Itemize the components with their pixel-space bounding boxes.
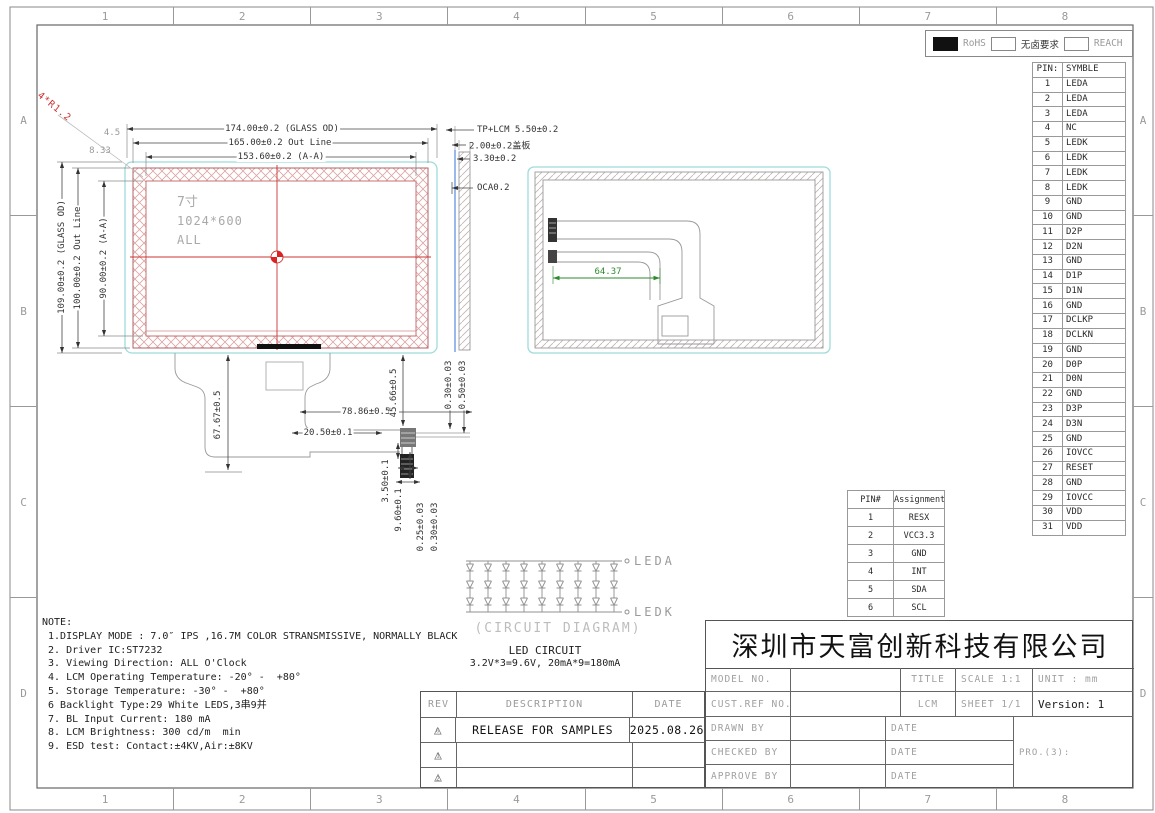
pin-symbol: GND (1063, 195, 1126, 210)
pin-number: 26 (1033, 446, 1063, 461)
zone-row-label: B (10, 216, 37, 407)
pin-number: 27 (1033, 461, 1063, 476)
pin-symbol: VDD (1063, 520, 1126, 535)
dim-thickness-1: 0.30±0.03 (444, 360, 454, 411)
pin-table-row: 2 LEDA (1033, 92, 1126, 107)
tp-pin-assignment: RESX (894, 509, 945, 527)
zone-col-label: 1 (37, 788, 174, 810)
zone-band-bottom: 12345678 (37, 788, 1133, 810)
model-no-value (791, 668, 901, 692)
pin-table-row: 26 IOVCC (1033, 446, 1126, 461)
note-line: 7. BL Input Current: 180 mA (42, 713, 457, 727)
dim-cable-length: 45.66±0.5 (389, 368, 399, 419)
pin-table-row: 8 LEDK (1033, 181, 1126, 196)
tp-pin-number: 5 (848, 581, 894, 599)
checked-by-value (791, 741, 886, 765)
dim-outline-height: 100.00±0.2 Out Line (73, 206, 83, 311)
pin-symbol: D3N (1063, 417, 1126, 432)
pin-table-row: 24 D3N (1033, 417, 1126, 432)
approve-date-label: DATE (886, 765, 1014, 788)
pin-symbol: GND (1063, 432, 1126, 447)
pin-table-row: 28 GND (1033, 476, 1126, 491)
zone-band-top: 12345678 (37, 7, 1133, 25)
pin-number: 14 (1033, 269, 1063, 284)
pin-number: 8 (1033, 181, 1063, 196)
side-view (446, 126, 474, 352)
dim-thickness-4: 0.30±0.03 (430, 502, 440, 553)
zone-row-label: D (1133, 598, 1153, 788)
note-line: 6 Backlight Type:29 White LEDS,3串9并 (42, 699, 457, 713)
date-col-header: DATE (633, 692, 704, 717)
zone-row-label: D (10, 598, 37, 788)
pin-number: 13 (1033, 254, 1063, 269)
zone-col-label: 8 (997, 7, 1133, 25)
front-view (125, 162, 437, 353)
pin-number: 19 (1033, 343, 1063, 358)
scale-label: SCALE 1:1 (956, 668, 1033, 692)
dim-cover-glass: 2.00±0.2盖板 (469, 139, 530, 152)
model-no-label: MODEL NO. (706, 668, 791, 692)
tp-pin-number: 6 (848, 599, 894, 617)
note-line: 9. ESD test: Contact:±4KV,Air:±8KV (42, 740, 457, 754)
pin-number: 9 (1033, 195, 1063, 210)
halogen-free-label: 无卤要求 (1021, 37, 1059, 51)
pin-symbol: NC (1063, 122, 1126, 137)
pin-number: 11 (1033, 225, 1063, 240)
zone-col-label: 2 (174, 7, 311, 25)
tp-pin-col-header: PIN# (848, 491, 894, 509)
approve-by-value (791, 765, 886, 788)
pin-table-row: 15 D1N (1033, 284, 1126, 299)
rohs-checkbox (933, 37, 958, 51)
lcm-label: LCM (901, 692, 956, 717)
pin-table-row: 6 LEDK (1033, 151, 1126, 166)
pin-symbol-table: PIN: SYMBLE 1 LEDA 2 LEDA 3 LEDA 4 NC 5 … (1032, 62, 1126, 536)
pin-number: 29 (1033, 491, 1063, 506)
pin-number: 21 (1033, 373, 1063, 388)
approve-by-label: APPROVE BY (706, 765, 791, 788)
reach-checkbox (1064, 37, 1089, 51)
tp-pin-assignment: GND (894, 545, 945, 563)
dim-lines-bottom (205, 355, 472, 482)
dim-thickness-3: 0.25±0.03 (416, 502, 426, 553)
zone-col-label: 3 (311, 788, 448, 810)
title-label: TITLE (901, 668, 956, 692)
revision-marker: △0 (421, 718, 456, 742)
pin-table-row: 17 DCLKP (1033, 314, 1126, 329)
pin-symbol: DCLKP (1063, 314, 1126, 329)
projection-label: PRO.(3): (1019, 748, 1070, 758)
pin-table-row: 25 GND (1033, 432, 1126, 447)
pin-symbol: VDD (1063, 505, 1126, 520)
dim-glass-width: 174.00±0.2 (GLASS OD) (224, 124, 340, 134)
pin-number: 5 (1033, 136, 1063, 151)
tp-table-header: PIN# Assignment (848, 491, 945, 509)
tp-pin-assignment: SCL (894, 599, 945, 617)
pin-number: 20 (1033, 358, 1063, 373)
pin-number: 18 (1033, 328, 1063, 343)
zone-col-label: 6 (723, 7, 860, 25)
zone-col-label: 7 (860, 7, 997, 25)
dim-tp-lcm: TP+LCM 5.50±0.2 (477, 125, 558, 135)
version-label: Version: 1 (1033, 692, 1133, 717)
halogen-free-checkbox (991, 37, 1016, 51)
dim-fpc-offset: 20.50±0.1 (303, 428, 354, 438)
tp-table-row: 6 SCL (848, 599, 945, 617)
pin-table-row: 20 D0P (1033, 358, 1126, 373)
pin-number: 3 (1033, 107, 1063, 122)
pin-symbol: GND (1063, 476, 1126, 491)
zone-row-label: A (10, 25, 37, 216)
tp-table-row: 3 GND (848, 545, 945, 563)
pin-symbol: LEDK (1063, 166, 1126, 181)
dim-oca: OCA0.2 (477, 183, 510, 193)
pin-number: 1 (1033, 77, 1063, 92)
pin-table-row: 12 D2N (1033, 240, 1126, 255)
zone-row-label: C (10, 407, 37, 598)
dim-aa-height: 90.00±0.2 (A-A) (99, 216, 109, 299)
pin-table-row: 27 RESET (1033, 461, 1126, 476)
pin-number: 6 (1033, 151, 1063, 166)
dim-outline-width: 165.00±0.2 Out Line (228, 138, 333, 148)
tp-table-row: 4 INT (848, 563, 945, 581)
pin-number: 10 (1033, 210, 1063, 225)
revision-description (457, 768, 633, 787)
pin-number: 23 (1033, 402, 1063, 417)
pin-table-row: 30 VDD (1033, 505, 1126, 520)
sheet-label: SHEET 1/1 (956, 692, 1033, 717)
zone-col-label: 4 (448, 788, 585, 810)
zone-row-label: C (1133, 407, 1153, 598)
led-circuit (466, 559, 629, 614)
checked-by-label: CHECKED BY (706, 741, 791, 765)
pin-number: 31 (1033, 520, 1063, 535)
reach-label: REACH (1094, 38, 1123, 49)
drawing-sheet: 12345678 12345678 ABCD ABCD RoHS 无卤要求 RE… (0, 0, 1155, 813)
tp-pin-number: 1 (848, 509, 894, 527)
revision-description (457, 743, 633, 767)
zone-col-label: 4 (448, 7, 585, 25)
zone-row-label: B (1133, 216, 1153, 407)
pin-table-row: 14 D1P (1033, 269, 1126, 284)
pin-symbol: D1N (1063, 284, 1126, 299)
pin-number: 24 (1033, 417, 1063, 432)
tp-table-row: 1 RESX (848, 509, 945, 527)
tp-table-row: 5 SDA (848, 581, 945, 599)
pin-symbol: RESET (1063, 461, 1126, 476)
pin-number: 4 (1033, 122, 1063, 137)
revision-date (633, 768, 704, 787)
revision-date: 2025.08.26 (630, 718, 704, 742)
pin-symbol: LEDA (1063, 107, 1126, 122)
note-line: 3. Viewing Direction: ALL O'Clock (42, 657, 457, 671)
pin-number: 12 (1033, 240, 1063, 255)
drawn-date-label: DATE (886, 717, 1014, 741)
zone-col-label: 6 (723, 788, 860, 810)
dim-corner-b: 8.33 (88, 146, 112, 156)
title-block: 深圳市天富创新科技有限公司 MODEL NO. TITLE SCALE 1:1 … (705, 620, 1133, 788)
pin-table-row: 31 VDD (1033, 520, 1126, 535)
pin-table-row: 1 LEDA (1033, 77, 1126, 92)
notes-title: NOTE: (42, 616, 457, 630)
rev-col-header: REV (421, 692, 457, 717)
pin-table-header: PIN: SYMBLE (1033, 63, 1126, 78)
zone-col-label: 8 (997, 788, 1133, 810)
revision-header: REV DESCRIPTION DATE (421, 692, 704, 718)
note-line: 4. LCM Operating Temperature: -20° - +80… (42, 671, 457, 685)
drawn-by-value (791, 717, 886, 741)
dim-lcm-thickness: 3.30±0.2 (473, 154, 516, 164)
led-circuit-spec: 3.2V*3=9.6V, 20mA*9=180mA (470, 658, 621, 669)
pin-symbol: LEDK (1063, 136, 1126, 151)
pin-table-row: 4 NC (1033, 122, 1126, 137)
zone-col-label: 3 (311, 7, 448, 25)
cust-ref-label: CUST.REF NO. (706, 692, 791, 717)
note-line: 1.DISPLAY MODE : 7.0″ IPS ,16.7M COLOR S… (42, 630, 457, 644)
note-line: 8. LCM Brightness: 300 cd/m min (42, 726, 457, 740)
zone-col-label: 5 (586, 788, 723, 810)
unit-label: UNIT : mm (1033, 668, 1133, 692)
tp-pin-table: PIN# Assignment 1 RESX 2 VCC3.3 3 GND 4 … (847, 490, 945, 617)
zone-band-left: ABCD (10, 25, 37, 788)
pin-table-row: 5 LEDK (1033, 136, 1126, 151)
pin-number: 28 (1033, 476, 1063, 491)
pin-table-row: 22 GND (1033, 387, 1126, 402)
tp-pin-assignment: INT (894, 563, 945, 581)
note-line: 5. Storage Temperature: -30° - +80° (42, 685, 457, 699)
pin-symbol: GND (1063, 299, 1126, 314)
pin-symbol: D0P (1063, 358, 1126, 373)
dim-glass-height: 109.00±0.2 (GLASS OD) (57, 199, 67, 315)
zone-col-label: 1 (37, 7, 174, 25)
pin-symbol: LEDA (1063, 77, 1126, 92)
note-line: 2. Driver IC:ST7232 (42, 644, 457, 658)
revision-triangle-icon: △2 (434, 771, 443, 784)
description-col-header: DESCRIPTION (457, 692, 633, 717)
dim-corner-a: 4.5 (103, 128, 121, 138)
dim-fpc-width: 78.86±0.5 (341, 407, 392, 417)
dim-gap: 3.50±0.1 (381, 458, 391, 503)
zone-col-label: 5 (586, 7, 723, 25)
pin-symbol: LEDK (1063, 151, 1126, 166)
dim-back-cable: 64.37 (593, 267, 622, 277)
pin-symbol: GND (1063, 254, 1126, 269)
pin-symbol: D2N (1063, 240, 1126, 255)
revision-row: △1 (421, 743, 704, 768)
panel-size: 7寸 (177, 193, 243, 212)
pin-number: 16 (1033, 299, 1063, 314)
pin-number: 7 (1033, 166, 1063, 181)
pin-symbol: GND (1063, 343, 1126, 358)
compliance-box: RoHS 无卤要求 REACH (925, 30, 1133, 57)
pin-symbol: LEDA (1063, 92, 1126, 107)
leda-label: LEDA (634, 554, 675, 568)
revision-table: REV DESCRIPTION DATE △0 RELEASE FOR SAMP… (420, 691, 705, 788)
pin-number: 30 (1033, 505, 1063, 520)
revision-marker: △1 (421, 743, 457, 767)
pin-symbol: DCLKN (1063, 328, 1126, 343)
pin-symbol: D3P (1063, 402, 1126, 417)
revision-description: RELEASE FOR SAMPLES (456, 718, 629, 742)
pin-symbol: LEDK (1063, 181, 1126, 196)
pin-table-row: 11 D2P (1033, 225, 1126, 240)
pin-table-row: 21 D0N (1033, 373, 1126, 388)
zone-col-label: 7 (860, 788, 997, 810)
panel-resolution: 1024*600 (177, 212, 243, 231)
pin-table-row: 7 LEDK (1033, 166, 1126, 181)
tp-pin-number: 2 (848, 527, 894, 545)
back-view (528, 167, 830, 353)
pin-number: 15 (1033, 284, 1063, 299)
projection-cell: PRO.(3): (1014, 717, 1134, 788)
tp-pin-assignment: VCC3.3 (894, 527, 945, 545)
revision-triangle-icon: △1 (434, 749, 443, 762)
dim-fpc-drop: 67.67±0.5 (213, 390, 223, 441)
notes-block: NOTE: 1.DISPLAY MODE : 7.0″ IPS ,16.7M C… (42, 616, 457, 754)
revision-row: △2 (421, 768, 704, 787)
pin-symbol: GND (1063, 387, 1126, 402)
pin-number: 25 (1033, 432, 1063, 447)
zone-band-right: ABCD (1133, 25, 1153, 788)
pin-symbol: IOVCC (1063, 446, 1126, 461)
tp-assignment-col-header: Assignment (894, 491, 945, 509)
pin-table-row: 16 GND (1033, 299, 1126, 314)
pin-table-row: 10 GND (1033, 210, 1126, 225)
revision-row: △0 RELEASE FOR SAMPLES 2025.08.26 (421, 718, 704, 743)
zone-col-label: 2 (174, 788, 311, 810)
pin-symbol: D1P (1063, 269, 1126, 284)
pin-symbol: D0N (1063, 373, 1126, 388)
zone-row-label: A (1133, 25, 1153, 216)
dim-connector-length: 9.60±0.1 (394, 487, 404, 532)
dim-aa-width: 153.60±0.2 (A-A) (237, 152, 326, 162)
pin-table-row: 18 DCLKN (1033, 328, 1126, 343)
tp-pin-number: 3 (848, 545, 894, 563)
pin-table-row: 9 GND (1033, 195, 1126, 210)
cust-ref-value (791, 692, 901, 717)
pin-table-row: 23 D3P (1033, 402, 1126, 417)
revision-date (633, 743, 704, 767)
company-name: 深圳市天富创新科技有限公司 (706, 621, 1134, 669)
panel-spec-label: 7寸 1024*600 ALL (177, 193, 243, 250)
symbol-col-header: SYMBLE (1063, 63, 1126, 78)
revision-triangle-icon: △0 (434, 724, 443, 737)
circuit-caption: (CIRCUIT DIAGRAM) (474, 621, 641, 636)
led-circuit-title: LED CIRCUIT (509, 644, 582, 657)
ledk-label: LEDK (634, 605, 675, 619)
checked-date-label: DATE (886, 741, 1014, 765)
pin-symbol: IOVCC (1063, 491, 1126, 506)
pin-table-row: 19 GND (1033, 343, 1126, 358)
revision-marker: △2 (421, 768, 457, 787)
rohs-label: RoHS (963, 38, 986, 49)
pin-symbol: D2P (1063, 225, 1126, 240)
drawn-by-label: DRAWN BY (706, 717, 791, 741)
tp-pin-assignment: SDA (894, 581, 945, 599)
pin-symbol: GND (1063, 210, 1126, 225)
tp-pin-number: 4 (848, 563, 894, 581)
tp-table-row: 2 VCC3.3 (848, 527, 945, 545)
pin-number: 2 (1033, 92, 1063, 107)
pin-col-header: PIN: (1033, 63, 1063, 78)
dim-thickness-2: 0.50±0.03 (458, 360, 468, 411)
panel-mode: ALL (177, 231, 243, 250)
pin-number: 22 (1033, 387, 1063, 402)
pin-number: 17 (1033, 314, 1063, 329)
pin-table-row: 29 IOVCC (1033, 491, 1126, 506)
pin-table-row: 3 LEDA (1033, 107, 1126, 122)
pin-table-row: 13 GND (1033, 254, 1126, 269)
